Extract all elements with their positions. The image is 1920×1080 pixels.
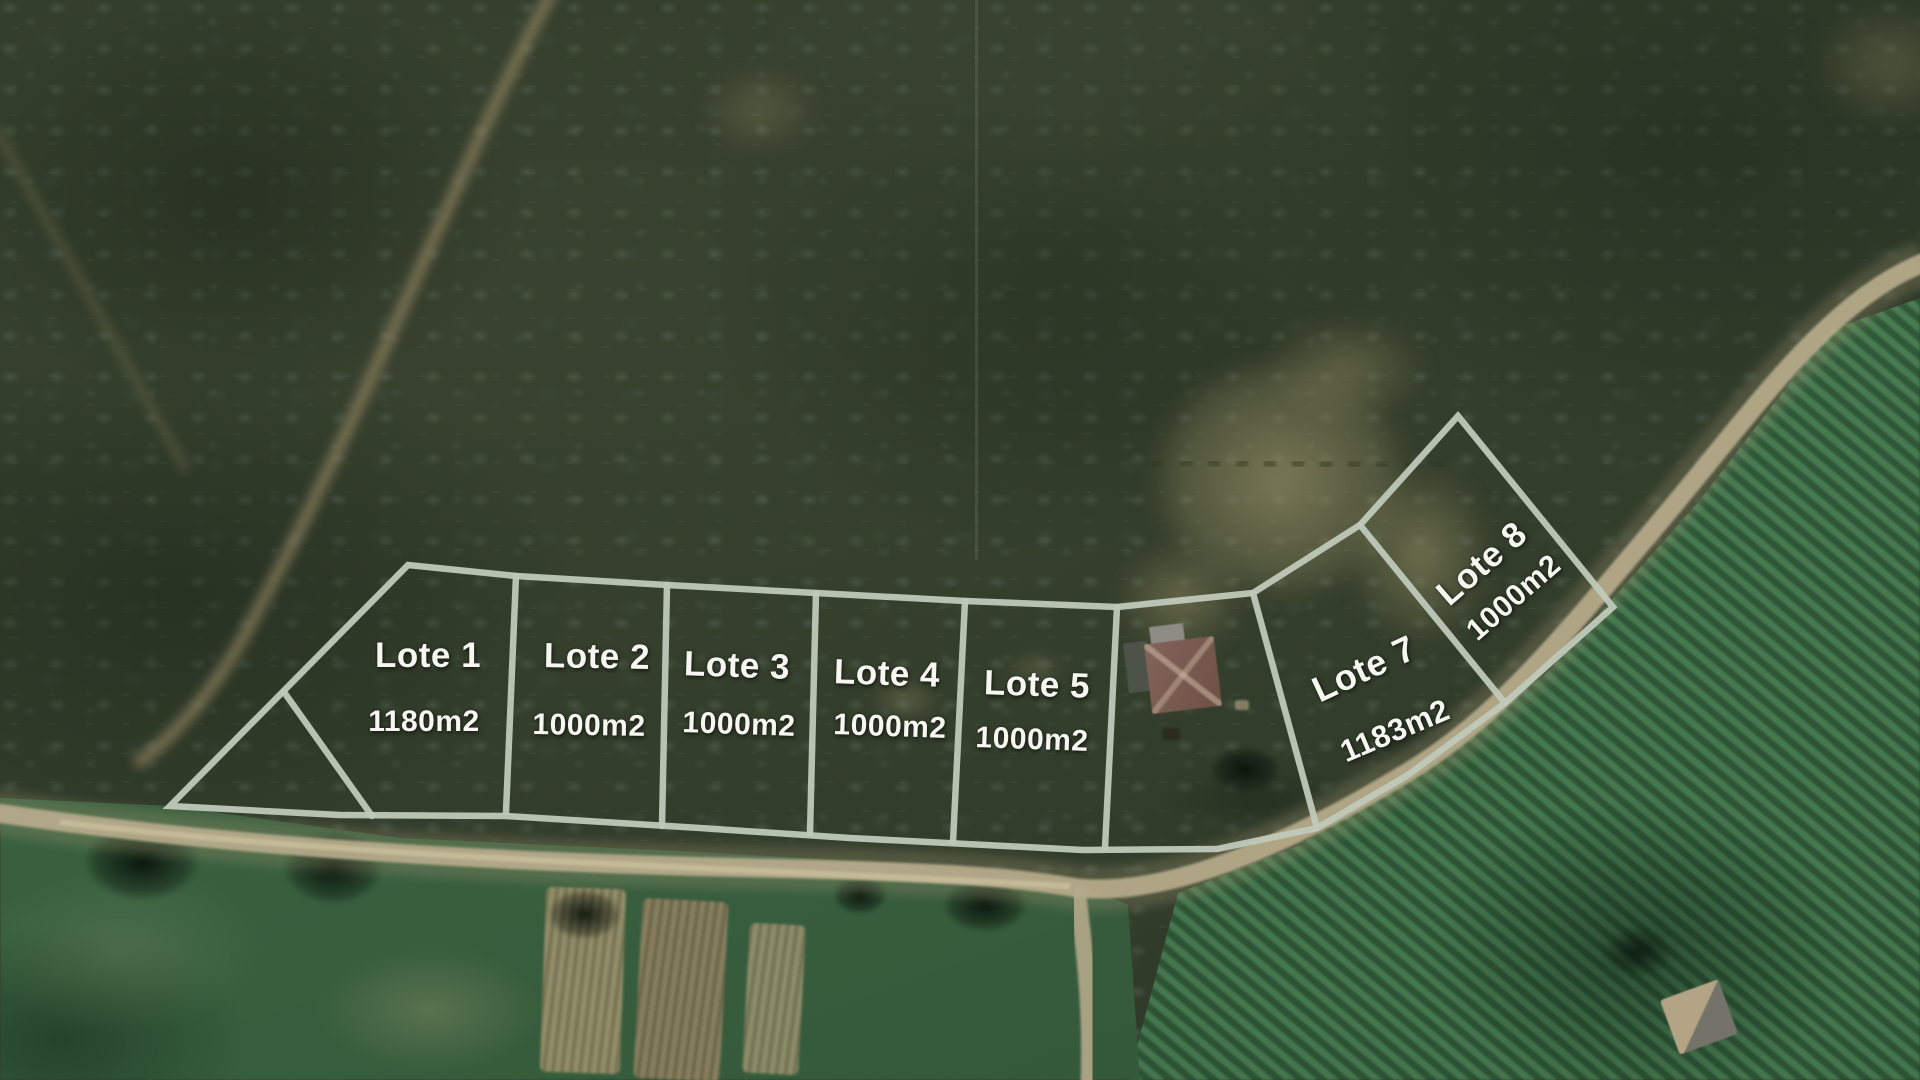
divider-lote4-lote5 — [953, 601, 965, 842]
divider-lote5-house-parcel — [1105, 607, 1117, 848]
lote-1-name: Lote 1 — [375, 636, 481, 676]
lote-1-area: 1180m2 — [368, 705, 479, 739]
lot-boundaries-layer — [0, 0, 1920, 1080]
lote-4-name: Lote 4 — [833, 652, 940, 696]
lote-4-area: 1000m2 — [833, 708, 947, 746]
lote-2-area: 1000m2 — [532, 708, 646, 744]
lote-3-name: Lote 3 — [683, 644, 790, 688]
lote-5-area: 1000m2 — [975, 721, 1089, 759]
lote-3-area: 1000m2 — [682, 706, 796, 744]
sliver-divider — [284, 692, 372, 816]
lote-2-name: Lote 2 — [544, 636, 651, 678]
lote-5-name: Lote 5 — [983, 663, 1090, 707]
divider-lote3-lote4 — [810, 593, 816, 833]
divider-lote1-lote2 — [506, 576, 516, 812]
aerial-lot-map: Lote 1 1180m2 Lote 2 1000m2 Lote 3 1000m… — [0, 0, 1920, 1080]
divider-house-parcel-lote7 — [1253, 593, 1317, 828]
divider-lote2-lote3 — [662, 585, 667, 826]
